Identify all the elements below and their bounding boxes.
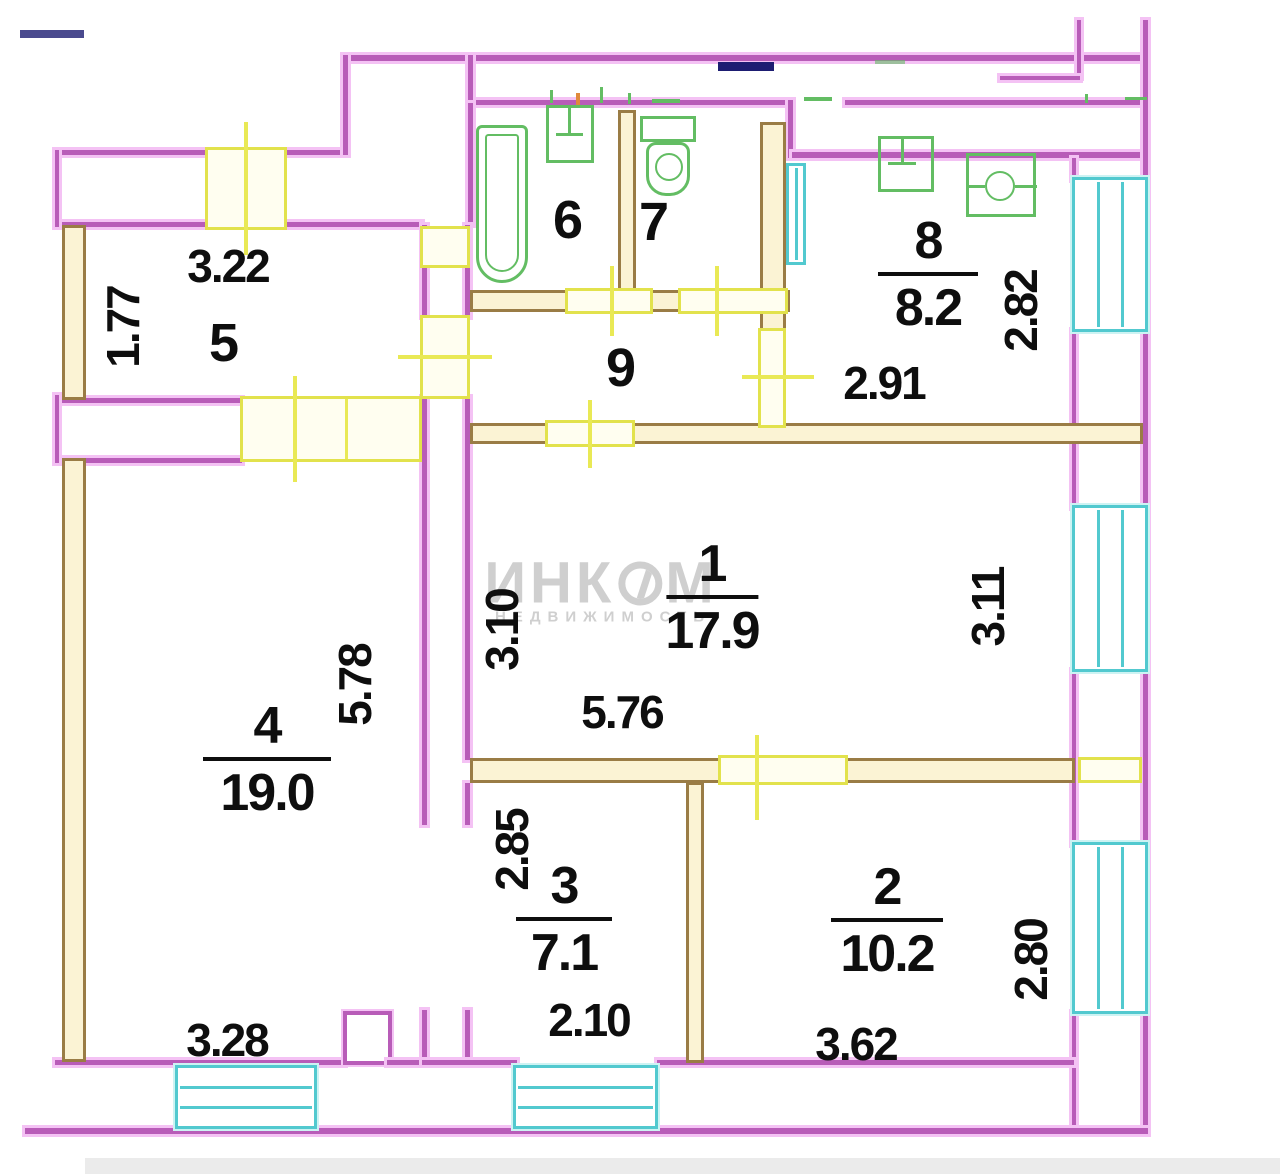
room4-fraction-bar: [203, 757, 331, 761]
room1-number: 1: [665, 538, 758, 590]
floor-plan: ИНКМ НЕДВИЖИМОСТЬ: [0, 0, 1280, 1174]
door-room9-room6-tick: [610, 266, 614, 336]
dim-room1-left: 3.10: [479, 589, 525, 671]
door-room5-room4-tick: [293, 376, 297, 482]
wall-left-stub-a: [55, 150, 59, 227]
wall-cavity-left-b: [422, 397, 427, 825]
wall-duct-left-cap: [468, 55, 473, 103]
duct-tick: [875, 60, 905, 64]
dim-room2-height: 2.80: [1008, 919, 1054, 1001]
room8-fraction-bar: [878, 272, 978, 276]
window-pane-line: [1097, 510, 1100, 667]
duct-mark-navy: [718, 62, 774, 71]
duct-tick-orange: [576, 93, 580, 105]
inkom-logo-o-icon: [618, 561, 662, 605]
washing-machine-line-left: [969, 185, 985, 188]
window-pane-line: [1097, 182, 1100, 327]
sink-bathroom-tap-line: [568, 105, 571, 135]
duct-tick: [550, 90, 553, 103]
room5-number: 5: [209, 316, 237, 370]
room1-fraction-bar: [666, 595, 758, 599]
wall-bath-block-left: [468, 103, 473, 225]
window-pane-line: [518, 1106, 653, 1109]
sink-kitchen-tap-line: [901, 136, 904, 164]
door-room9-room7-tick: [715, 266, 719, 336]
wall-bath-wc-divider: [618, 110, 636, 292]
scan-edge-band: [85, 1158, 1280, 1174]
door-room5-room4-divider: [345, 399, 348, 459]
door-room1-room2-tick: [755, 735, 759, 820]
bathtub-inner-line: [485, 134, 519, 272]
wall-cavity-right-d: [465, 1010, 470, 1065]
toilet-bowl-icon: [646, 142, 690, 196]
room1-label: 1 17.9: [665, 538, 758, 657]
room8-number: 8: [878, 215, 978, 267]
wall-room3-bottom-a: [422, 1060, 517, 1065]
room4-label: 4 19.0: [203, 700, 331, 819]
room8-label: 8 8.2: [878, 215, 978, 334]
duct-tick: [804, 97, 832, 101]
dim-room3-width: 2.10: [548, 997, 630, 1043]
washing-machine-drum: [985, 171, 1015, 201]
window-pane-line: [180, 1106, 312, 1109]
room9-number: 9: [606, 341, 634, 395]
dim-room1-width: 5.76: [581, 689, 663, 735]
door-room9-room8-tick: [742, 375, 814, 379]
door-entry-tick: [244, 122, 248, 255]
door-room5-room9-tick: [398, 355, 492, 359]
toilet-tank-icon: [640, 116, 696, 142]
wall-stair-h: [1000, 76, 1080, 80]
wall-stair-v: [1077, 20, 1081, 78]
wall-cavity-right-c: [465, 783, 470, 825]
duct-tick: [600, 87, 603, 103]
room4-area: 19.0: [203, 767, 331, 819]
room7-number: 7: [639, 195, 667, 249]
room6-number: 6: [553, 193, 581, 247]
dim-room8-height: 2.82: [998, 270, 1044, 352]
wall-room5-left-tan: [62, 225, 86, 400]
sink-bathroom-tap-bar: [556, 133, 583, 136]
room2-number: 2: [831, 861, 943, 913]
bathtub-icon: [476, 125, 528, 283]
dim-room5-width: 3.22: [187, 243, 269, 289]
dim-room4-height: 5.78: [332, 644, 378, 726]
window-room8: [1072, 177, 1148, 332]
door-room9-room1-tick: [588, 400, 592, 468]
door-fill-cavity-top: [420, 226, 470, 268]
sink-kitchen-tap-bar: [888, 162, 916, 165]
glass-block-wc: [786, 163, 806, 265]
duct-tick: [652, 99, 680, 103]
window-pane-line: [1097, 847, 1100, 1009]
washing-machine-line-right: [1015, 185, 1037, 188]
dim-room1-right: 3.11: [965, 568, 1011, 647]
window-room3: [513, 1065, 658, 1129]
dim-room8-width: 2.91: [843, 360, 925, 406]
wall-corridor-top: [55, 150, 345, 155]
window-pane-line: [1121, 182, 1124, 327]
wall-right-inner-d: [1072, 1012, 1076, 1134]
room2-label: 2 10.2: [831, 861, 943, 980]
room3-area: 7.1: [516, 927, 612, 979]
dim-room4-width: 3.28: [186, 1017, 268, 1063]
wall-left-stub-b: [55, 395, 59, 463]
window-room1: [1072, 505, 1148, 672]
window-pane-line: [1121, 510, 1124, 667]
wall-top-outer: [343, 55, 1148, 61]
duct-tick: [628, 93, 631, 104]
room2-area: 10.2: [831, 928, 943, 980]
duct-tick: [1085, 94, 1088, 103]
wall-cavity-right-b: [465, 397, 470, 760]
wall-room3-room2-divider: [686, 782, 704, 1063]
wall-duct-connector: [788, 100, 793, 158]
dim-room5-height: 1.77: [100, 286, 146, 368]
door-room5-room4: [240, 396, 422, 462]
window-room4: [175, 1065, 317, 1129]
room4-number: 4: [203, 700, 331, 752]
dim-room2-width: 3.62: [815, 1021, 897, 1067]
window-pane-line: [1121, 847, 1124, 1009]
wall-pillar-bump: [343, 1011, 392, 1065]
door-fill-wall-right: [1078, 757, 1142, 783]
door-room1-room2: [718, 755, 848, 785]
edge-mark-navy: [20, 30, 84, 38]
window-pane-line: [180, 1086, 312, 1089]
wall-room4-left-tan: [62, 458, 86, 1062]
door-room9-room7: [678, 288, 788, 314]
window-room2: [1072, 842, 1148, 1014]
wall-room4-bottom-b: [387, 1060, 424, 1065]
wall-right-inner-b: [1072, 330, 1076, 508]
room2-fraction-bar: [831, 918, 943, 922]
toilet-bowl-circle: [655, 153, 683, 181]
wall-vestibule-left: [343, 55, 348, 155]
wall-cavity-left-c: [422, 1010, 427, 1065]
door-room9-room6: [565, 288, 653, 314]
washing-machine-icon: [966, 153, 1036, 217]
wall-duct-bottom-right: [845, 100, 1148, 105]
duct-tick: [1125, 97, 1147, 100]
window-pane-line: [795, 168, 798, 260]
room1-area: 17.9: [665, 605, 758, 657]
dim-room3-height: 2.85: [489, 809, 535, 891]
window-pane-line: [518, 1086, 653, 1089]
room3-fraction-bar: [516, 917, 612, 921]
room8-area: 8.2: [878, 282, 978, 334]
